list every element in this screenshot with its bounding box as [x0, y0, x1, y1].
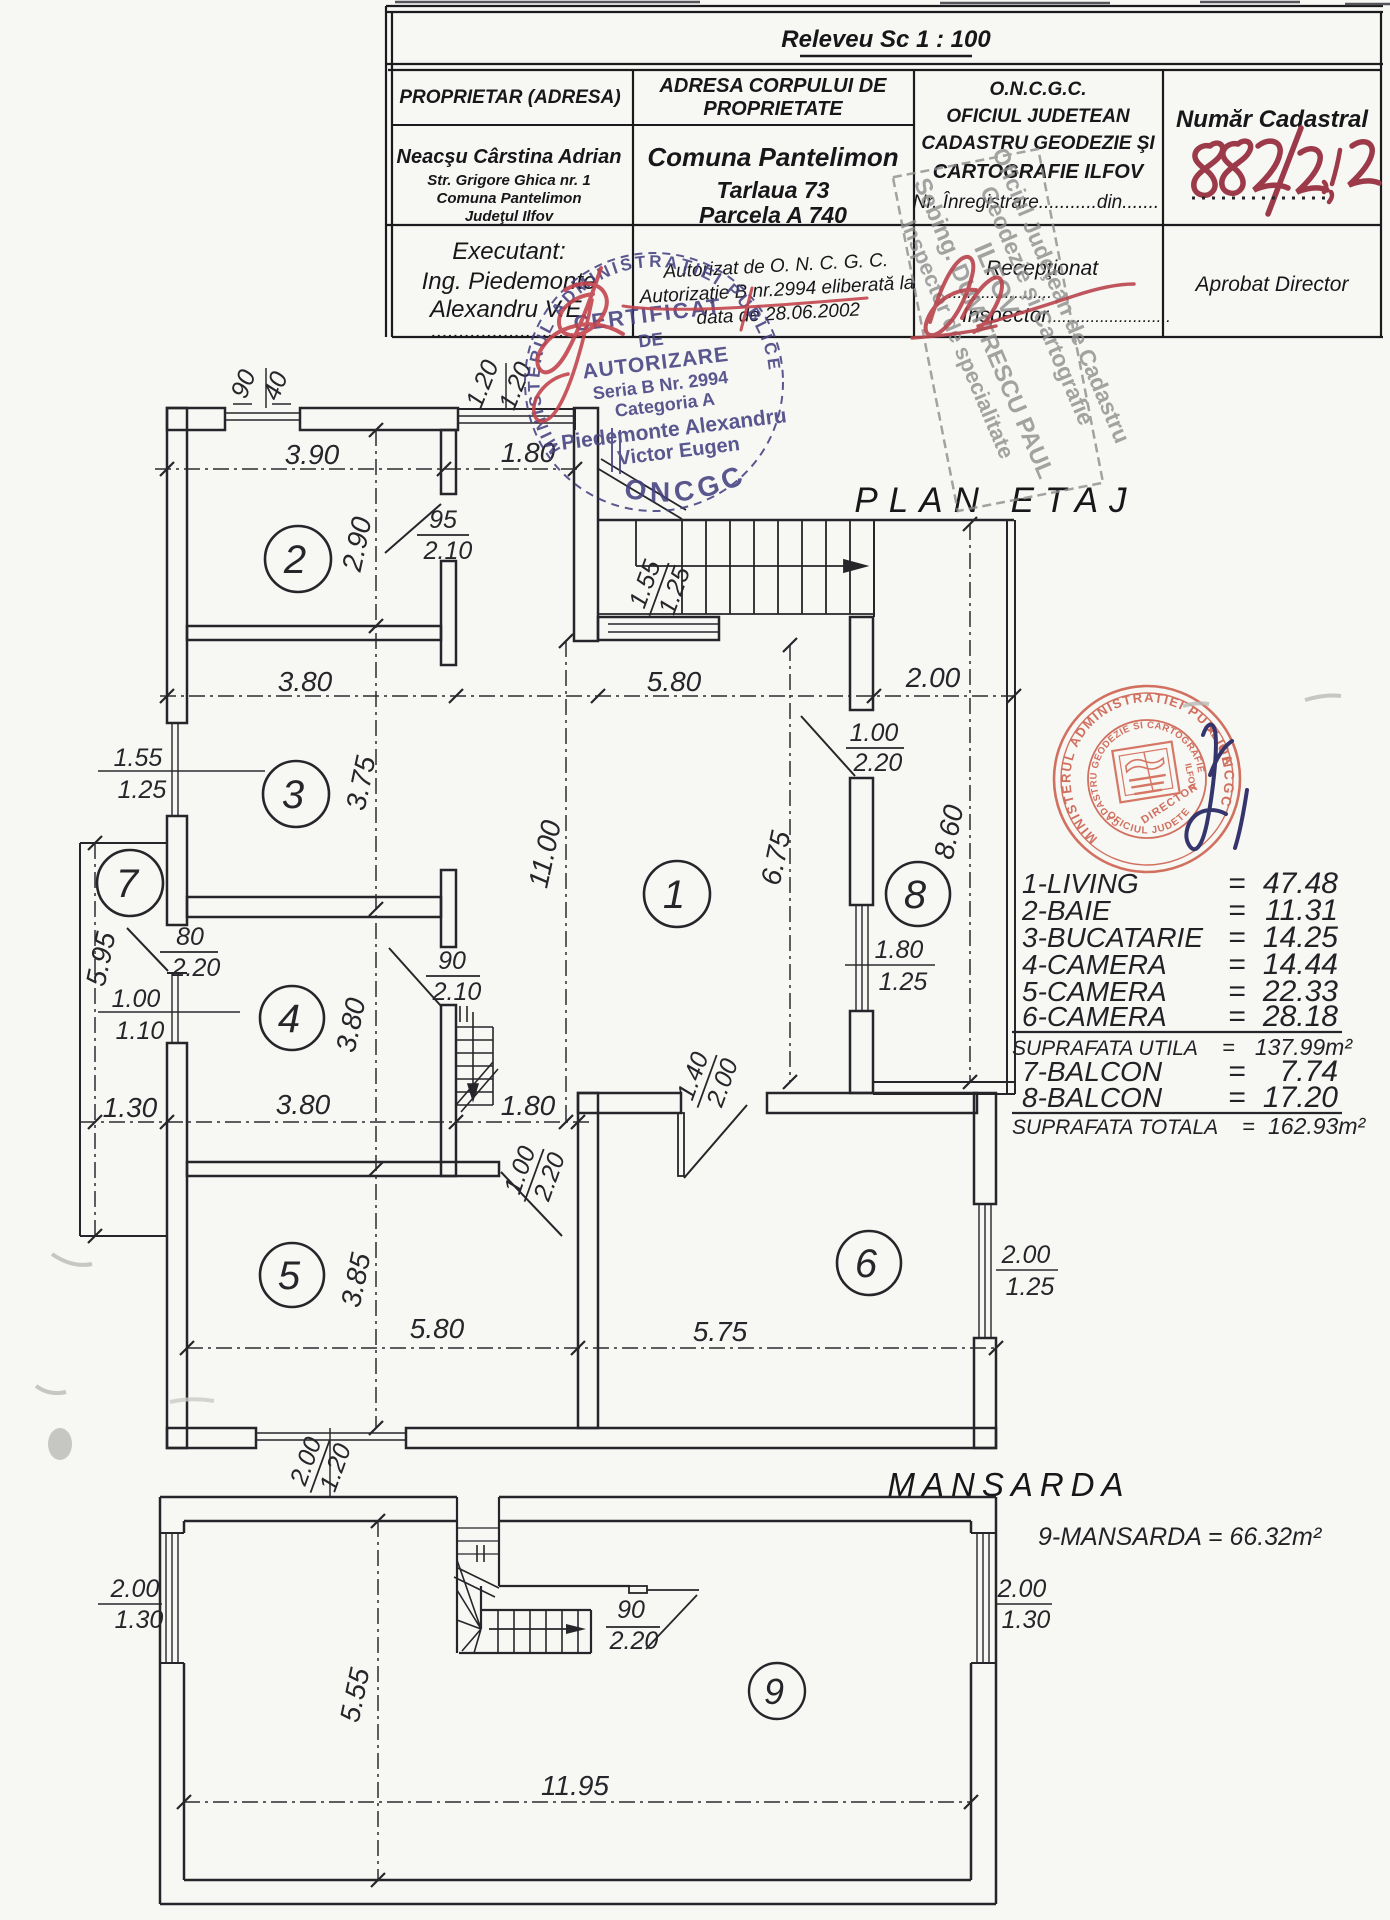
svg-text:O.N.C.G.C.: O.N.C.G.C. [989, 79, 1086, 100]
svg-text:2: 2 [283, 538, 306, 582]
svg-text:1.10: 1.10 [116, 1017, 165, 1045]
svg-text:1.25: 1.25 [1006, 1273, 1055, 1301]
svg-text:1.80: 1.80 [501, 1090, 556, 1121]
svg-text:2.10: 2.10 [432, 978, 482, 1006]
svg-text:5.80: 5.80 [410, 1313, 465, 1344]
svg-text:Str. Grigore Ghica nr. 1: Str. Grigore Ghica nr. 1 [427, 172, 590, 189]
svg-text:2.00: 2.00 [997, 1575, 1047, 1603]
svg-text:SUPRAFATA TOTALA: SUPRAFATA TOTALA [1012, 1116, 1218, 1139]
svg-text:DE: DE [637, 329, 664, 352]
svg-text:1.55: 1.55 [114, 744, 163, 772]
svg-text:2.00: 2.00 [905, 662, 961, 693]
svg-text:1.00: 1.00 [112, 985, 161, 1013]
svg-text:Aprobat Director: Aprobat Director [1194, 273, 1350, 296]
svg-text:3: 3 [282, 773, 304, 817]
svg-text:162.93m²: 162.93m² [1268, 1113, 1367, 1139]
svg-text:9: 9 [764, 1671, 784, 1712]
svg-text:Executant:: Executant: [452, 238, 565, 265]
svg-text:90: 90 [617, 1596, 645, 1624]
svg-text:7: 7 [116, 862, 140, 906]
svg-text:Comuna Pantelimon: Comuna Pantelimon [647, 142, 898, 172]
svg-text:17.20: 17.20 [1263, 1081, 1338, 1114]
svg-text:=: = [1242, 1114, 1255, 1139]
svg-text:Releveu Sc 1 : 100: Releveu Sc 1 : 100 [781, 26, 991, 53]
svg-text:3.90: 3.90 [285, 439, 340, 470]
svg-text:1.80: 1.80 [875, 936, 924, 964]
svg-text:Neacşu Cârstina Adrian: Neacşu Cârstina Adrian [397, 146, 622, 168]
svg-text:90: 90 [438, 947, 466, 975]
svg-text:4: 4 [278, 997, 300, 1041]
svg-text:1: 1 [663, 873, 685, 917]
svg-text:2.00: 2.00 [1001, 1241, 1051, 1269]
svg-text:3.80: 3.80 [278, 666, 333, 697]
svg-text:=: = [1228, 1000, 1246, 1033]
svg-text:2.20: 2.20 [609, 1627, 659, 1655]
svg-text:1.00: 1.00 [850, 719, 899, 747]
svg-text:ADRESA CORPULUI DE: ADRESA CORPULUI DE [658, 75, 887, 97]
svg-text:2.10: 2.10 [423, 537, 473, 565]
svg-text:PLAN ETAJ: PLAN ETAJ [854, 481, 1137, 520]
svg-text:5: 5 [278, 1254, 301, 1298]
svg-text:2.20: 2.20 [853, 749, 903, 777]
svg-text:PROPRIETATE: PROPRIETATE [703, 98, 843, 120]
svg-text:8: 8 [904, 873, 927, 917]
svg-text:Judeţul Ilfov: Judeţul Ilfov [465, 208, 555, 225]
svg-text:80: 80 [176, 923, 204, 951]
svg-text:1.25: 1.25 [118, 776, 167, 804]
svg-text:Comuna Pantelimon: Comuna Pantelimon [436, 190, 581, 207]
svg-text:=: = [1228, 1081, 1246, 1114]
svg-text:11.95: 11.95 [541, 1770, 609, 1801]
svg-text:Tarlaua 73: Tarlaua 73 [717, 177, 830, 203]
svg-text:Număr Cadastral: Număr Cadastral [1176, 106, 1369, 133]
svg-text:2.20: 2.20 [171, 954, 221, 982]
svg-text:1.30: 1.30 [1002, 1606, 1051, 1634]
svg-text:28.18: 28.18 [1262, 1000, 1338, 1033]
svg-text:1.30: 1.30 [103, 1092, 158, 1123]
svg-text:5.75: 5.75 [693, 1316, 748, 1347]
svg-text:2.00: 2.00 [110, 1575, 160, 1603]
svg-text:1.25: 1.25 [879, 968, 928, 996]
svg-text:95: 95 [429, 506, 457, 534]
svg-text:1.30: 1.30 [115, 1606, 164, 1634]
svg-text:3.80: 3.80 [276, 1089, 331, 1120]
svg-text:CADASTRU GEODEZIE ŞI: CADASTRU GEODEZIE ŞI [921, 133, 1155, 154]
svg-text:8-BALCON: 8-BALCON [1022, 1082, 1163, 1113]
svg-text:Parcela A 740: Parcela A 740 [699, 202, 847, 228]
svg-text:PROPRIETAR (ADRESA): PROPRIETAR (ADRESA) [399, 87, 620, 108]
svg-text:5.80: 5.80 [647, 666, 702, 697]
svg-text:6: 6 [855, 1242, 878, 1286]
svg-text:9-MANSARDA = 66.32m²: 9-MANSARDA = 66.32m² [1038, 1523, 1323, 1551]
svg-text:6-CAMERA: 6-CAMERA [1022, 1001, 1167, 1032]
svg-text:OFICIUL JUDETEAN: OFICIUL JUDETEAN [946, 106, 1131, 127]
